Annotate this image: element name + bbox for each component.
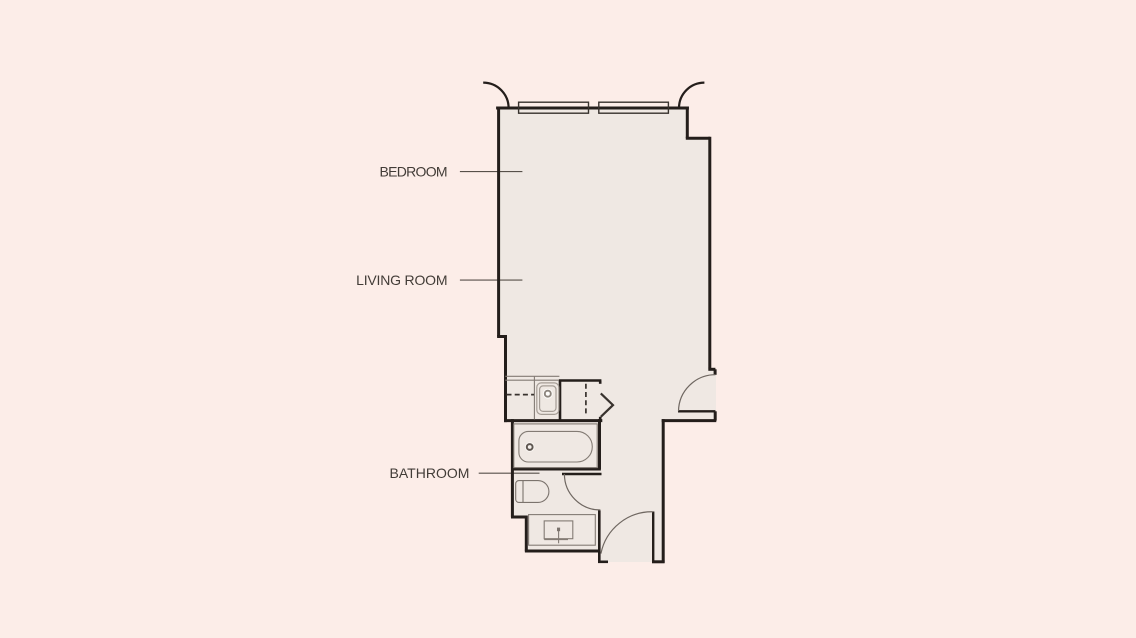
svg-text:BEDROOM: BEDROOM <box>379 164 446 180</box>
svg-text:LIVING ROOM: LIVING ROOM <box>356 272 447 288</box>
svg-text:BATHROOM: BATHROOM <box>390 465 470 481</box>
